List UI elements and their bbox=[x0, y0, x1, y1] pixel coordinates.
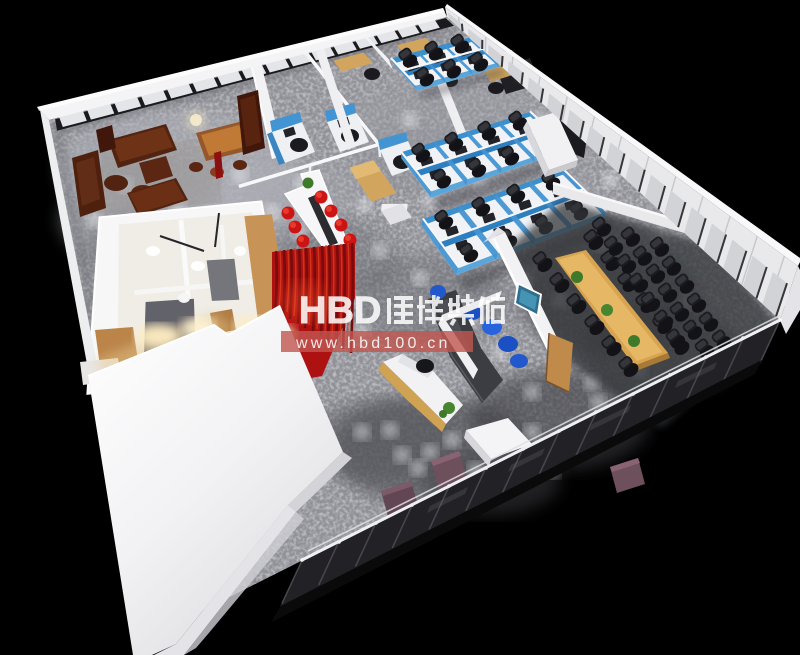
svg-text:HBD: HBD bbox=[299, 290, 381, 332]
svg-text:www.hbd100.cn: www.hbd100.cn bbox=[295, 335, 451, 352]
